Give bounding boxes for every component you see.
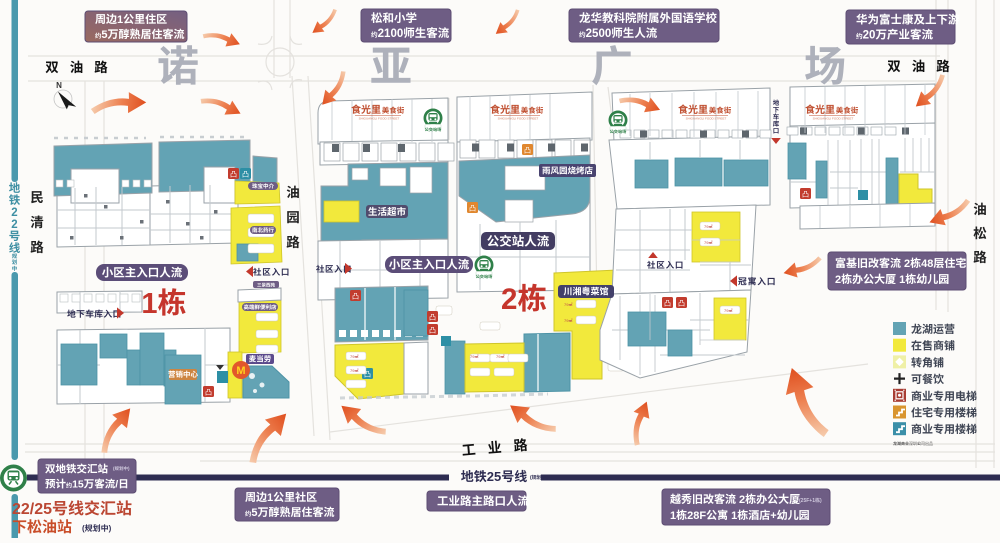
svg-text:2: 2 xyxy=(11,219,17,231)
svg-text:2栋办公大厦 1栋幼儿园: 2栋办公大厦 1栋幼儿园 xyxy=(835,273,949,286)
svg-text:凸: 凸 xyxy=(802,191,809,199)
svg-text:食光里: 食光里 xyxy=(678,104,708,116)
svg-text:凸: 凸 xyxy=(469,205,476,213)
svg-text:划: 划 xyxy=(12,259,18,266)
svg-text:清: 清 xyxy=(30,215,44,230)
svg-text:SHIGUANGLI FOOD STREET: SHIGUANGLI FOOD STREET xyxy=(813,117,854,121)
svg-text:预计约15万客流/日: 预计约15万客流/日 xyxy=(45,477,129,490)
svg-text:龙华教科院附属外国语学校: 龙华教科院附属外国语学校 xyxy=(579,12,717,25)
svg-text:小区主入口人流: 小区主入口人流 xyxy=(102,267,183,280)
svg-text:园: 园 xyxy=(286,210,300,225)
svg-text:在售商铺: 在售商铺 xyxy=(911,340,955,353)
svg-text:社区入口: 社区入口 xyxy=(647,260,684,270)
svg-text:2栋: 2栋 xyxy=(501,283,547,316)
svg-text:华为富士康及上下游: 华为富士康及上下游 xyxy=(856,14,960,27)
svg-text:79㎡: 79㎡ xyxy=(724,308,732,313)
svg-text:79㎡: 79㎡ xyxy=(704,240,712,245)
svg-text:地铁25号线: 地铁25号线 xyxy=(461,469,527,484)
svg-text:住宅专用楼梯: 住宅专用楼梯 xyxy=(911,407,977,420)
svg-text:转角铺: 转角铺 xyxy=(911,356,944,369)
svg-text:龙湖运营: 龙湖运营 xyxy=(911,323,955,336)
svg-text:SHIGUANGLI FOOD STREET: SHIGUANGLI FOOD STREET xyxy=(359,117,400,121)
svg-text:约5万醇熟居住客流: 约5万醇熟居住客流 xyxy=(95,28,185,41)
svg-text:号: 号 xyxy=(9,230,21,243)
svg-text:车: 车 xyxy=(773,113,780,121)
svg-text:79㎡: 79㎡ xyxy=(564,318,572,323)
svg-text:(规划中): (规划中) xyxy=(113,466,130,471)
svg-text:约2500师生人流: 约2500师生人流 xyxy=(579,27,658,40)
svg-text:美食街: 美食街 xyxy=(836,106,859,115)
svg-text:高端鲜便利店: 高端鲜便利店 xyxy=(243,304,277,311)
svg-text:凸: 凸 xyxy=(242,171,249,179)
svg-text:亚: 亚 xyxy=(370,43,412,90)
svg-text:凸: 凸 xyxy=(230,171,237,179)
svg-text:库: 库 xyxy=(773,120,780,128)
svg-text:SHIGUANGLI FOOD STREET: SHIGUANGLI FOOD STREET xyxy=(498,117,539,121)
svg-text:可餐饮: 可餐饮 xyxy=(911,373,944,386)
svg-text:龙湖商业深圳公司出品: 龙湖商业深圳公司出品 xyxy=(893,440,933,446)
svg-text:凸: 凸 xyxy=(352,293,359,301)
svg-text:越秀旧改客流 2栋办公大厦: 越秀旧改客流 2栋办公大厦 xyxy=(670,493,800,506)
svg-text:地: 地 xyxy=(9,182,21,195)
svg-text:地下车库入口: 地下车库入口 xyxy=(67,309,122,319)
svg-text:冠寓入口: 冠寓入口 xyxy=(738,277,776,287)
svg-text:79㎡: 79㎡ xyxy=(704,224,712,229)
svg-text:公交站场: 公交站场 xyxy=(476,274,493,279)
svg-text:双油路: 双油路 xyxy=(45,60,119,75)
svg-text:约5万醇熟居住客流: 约5万醇熟居住客流 xyxy=(245,506,335,519)
svg-text:公交站场: 公交站场 xyxy=(610,129,627,134)
svg-text:公交站人流: 公交站人流 xyxy=(487,235,550,249)
svg-text:79㎡: 79㎡ xyxy=(564,302,572,307)
svg-text:川湘粤菜馆: 川湘粤菜馆 xyxy=(563,287,608,297)
svg-text:路: 路 xyxy=(286,235,300,250)
svg-text:生活超市: 生活超市 xyxy=(368,206,407,218)
svg-text:规: 规 xyxy=(12,253,18,260)
svg-text:(25F+1栋): (25F+1栋) xyxy=(799,497,822,504)
svg-text:公交站场: 公交站场 xyxy=(425,127,442,132)
svg-text:1栋28F公寓 1栋酒店+幼儿园: 1栋28F公寓 1栋酒店+幼儿园 xyxy=(670,509,810,522)
svg-text:社区入口: 社区入口 xyxy=(253,267,290,277)
svg-text:雨风园烧烤店: 雨风园烧烤店 xyxy=(542,166,594,176)
svg-text:场: 场 xyxy=(804,43,846,90)
svg-text:中: 中 xyxy=(12,265,18,272)
svg-text:22/25号线交汇站: 22/25号线交汇站 xyxy=(12,500,132,518)
svg-text:路: 路 xyxy=(973,250,987,265)
svg-text:诺: 诺 xyxy=(157,43,199,90)
svg-text:M: M xyxy=(236,365,245,377)
svg-text:松和小学: 松和小学 xyxy=(371,12,417,25)
svg-text:双油路: 双油路 xyxy=(887,59,961,74)
svg-text:小区主入口人流: 小区主入口人流 xyxy=(389,259,470,272)
svg-text:约20万产业客流: 约20万产业客流 xyxy=(856,29,933,42)
svg-text:下: 下 xyxy=(773,106,780,114)
svg-text:食光里: 食光里 xyxy=(805,104,835,116)
svg-text:(规划中): (规划中) xyxy=(82,524,112,533)
svg-text:79㎡: 79㎡ xyxy=(496,354,504,359)
svg-text:三景西苑: 三景西苑 xyxy=(257,283,275,288)
svg-text:口: 口 xyxy=(773,128,780,135)
svg-text:双地铁交汇站: 双地铁交汇站 xyxy=(45,462,108,475)
svg-text:富基旧改客流 2栋48层住宅: 富基旧改客流 2栋48层住宅 xyxy=(835,257,966,270)
svg-text:南北药行: 南北药行 xyxy=(252,227,275,234)
svg-text:油: 油 xyxy=(973,202,987,217)
svg-text:广: 广 xyxy=(591,43,633,90)
svg-text:商业专用电梯: 商业专用电梯 xyxy=(911,390,977,403)
svg-text:凸: 凸 xyxy=(205,389,212,397)
svg-text:周边1公里住区: 周边1公里住区 xyxy=(95,13,167,26)
svg-text:凸: 凸 xyxy=(524,147,531,155)
svg-text:SHIGUANGLI FOOD STREET: SHIGUANGLI FOOD STREET xyxy=(686,117,727,121)
svg-text:凸: 凸 xyxy=(664,300,671,308)
svg-text:食光里: 食光里 xyxy=(490,104,520,116)
svg-text:2: 2 xyxy=(11,207,17,219)
svg-text:路: 路 xyxy=(30,240,44,255)
svg-text:凸: 凸 xyxy=(429,314,436,322)
svg-text:珠宝中介: 珠宝中介 xyxy=(252,183,275,190)
svg-text:美食街: 美食街 xyxy=(709,106,732,115)
svg-text:油: 油 xyxy=(286,185,300,200)
svg-text:79㎡: 79㎡ xyxy=(350,368,358,373)
svg-text:下松油站: 下松油站 xyxy=(12,519,72,536)
svg-text:79㎡: 79㎡ xyxy=(470,354,478,359)
svg-text:N: N xyxy=(56,81,62,90)
svg-text:(规划中): (规划中) xyxy=(530,474,549,481)
svg-text:美食街: 美食街 xyxy=(382,106,405,115)
svg-text:凸: 凸 xyxy=(678,300,685,308)
svg-text:79㎡: 79㎡ xyxy=(350,354,358,359)
svg-text:食光里: 食光里 xyxy=(351,104,381,116)
svg-text:1栋: 1栋 xyxy=(141,288,186,320)
svg-text:营销中心: 营销中心 xyxy=(168,370,198,379)
svg-text:工业路主路口人流: 工业路主路口人流 xyxy=(437,495,529,508)
svg-text:凸: 凸 xyxy=(429,327,436,335)
svg-text:松: 松 xyxy=(973,226,987,241)
svg-text:约2100师生客流: 约2100师生客流 xyxy=(371,27,450,40)
svg-text:麦当劳: 麦当劳 xyxy=(249,355,272,364)
svg-text:商业专用楼梯: 商业专用楼梯 xyxy=(911,423,977,436)
svg-text:周边1公里社区: 周边1公里社区 xyxy=(245,491,317,504)
svg-text:民: 民 xyxy=(30,190,44,205)
svg-text:铁: 铁 xyxy=(9,194,21,207)
svg-text:地: 地 xyxy=(773,99,780,107)
svg-text:美食街: 美食街 xyxy=(521,106,544,115)
